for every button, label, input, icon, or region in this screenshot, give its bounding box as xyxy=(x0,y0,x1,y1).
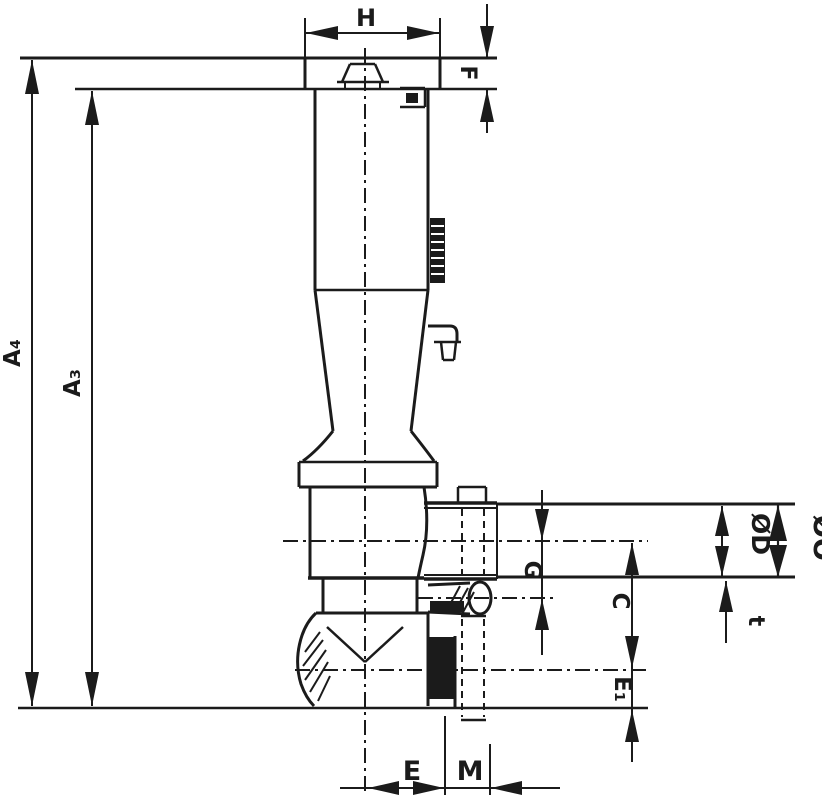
hidden-channel xyxy=(461,616,486,720)
dim-label-a3: A₃ xyxy=(60,369,86,397)
dim-label-e1: E₁ xyxy=(609,676,635,702)
dimensions: H F A₄ A₃ ØD xyxy=(0,4,822,795)
dim-label-f: F xyxy=(455,65,480,80)
dim-label-a4: A₄ xyxy=(0,339,26,367)
dim-e-m: E M xyxy=(340,756,560,795)
centerlines xyxy=(283,48,648,795)
dim-label-t: t xyxy=(743,616,768,627)
dim-label-h: H xyxy=(356,4,376,32)
dim-label-g: G xyxy=(519,561,545,580)
dimension-drawing: H F A₄ A₃ ØD xyxy=(0,0,822,800)
side-port xyxy=(424,487,497,579)
side-button xyxy=(428,326,461,360)
dim-g: G xyxy=(519,490,549,655)
dim-a4: A₄ xyxy=(0,60,39,706)
drawing-canvas: H F A₄ A₃ ØD xyxy=(0,0,822,800)
dome-hatching xyxy=(303,632,330,701)
dim-label-e: E xyxy=(403,756,421,787)
knurl-band xyxy=(430,218,445,283)
dim-label-oo: ØO xyxy=(807,515,822,561)
dim-od: ØD xyxy=(715,506,775,576)
extension-lines xyxy=(18,18,795,795)
dim-t: t xyxy=(719,581,768,643)
cap-clip xyxy=(400,88,425,107)
part-outline xyxy=(298,58,497,720)
dim-a3: A₃ xyxy=(60,91,99,706)
dim-f: F xyxy=(455,4,494,133)
dim-oo: ØO xyxy=(769,505,822,577)
dim-label-m: M xyxy=(457,756,484,787)
dim-h: H xyxy=(305,4,440,40)
dim-label-c: C xyxy=(607,593,633,610)
spout-section xyxy=(429,637,455,699)
